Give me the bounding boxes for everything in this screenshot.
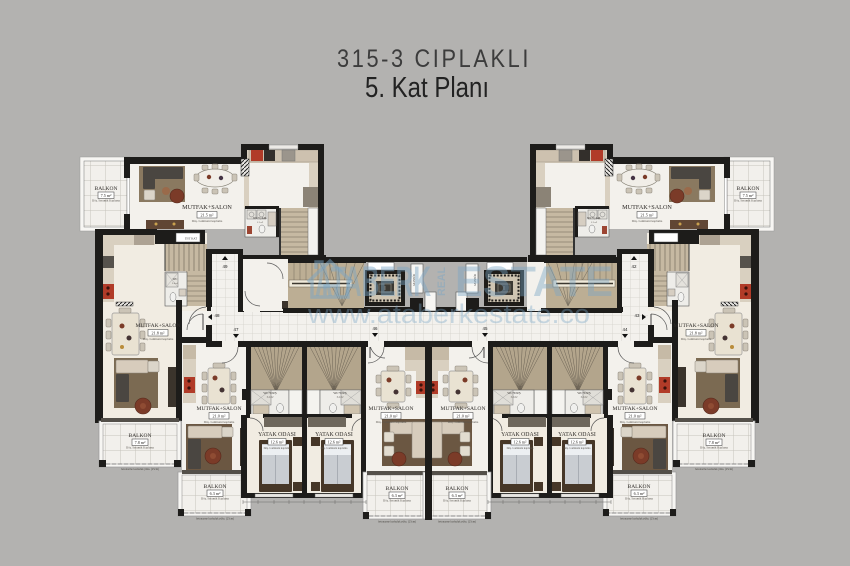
svg-text:7.5 m²: 7.5 m² — [743, 193, 755, 198]
svg-text:12.6 m²: 12.6 m² — [271, 440, 285, 445]
svg-text:YATAK ODASI: YATAK ODASI — [315, 432, 353, 438]
svg-text:BALKON: BALKON — [386, 486, 409, 492]
svg-text:MUTFAK+SALON: MUTFAK+SALON — [368, 406, 413, 412]
svg-text:www.ataberkestate.co: www.ataberkestate.co — [307, 299, 590, 329]
svg-text:BALKON: BALKON — [129, 433, 152, 439]
svg-text:Döş. Laminant kaplama: Döş. Laminant kaplama — [204, 420, 235, 424]
svg-text:21.0 m²: 21.0 m² — [213, 414, 227, 419]
svg-text:Döş. Seramik Kaplama: Döş. Seramik Kaplama — [734, 199, 763, 203]
svg-text:MUTFAK+SALON: MUTFAK+SALON — [440, 406, 485, 412]
svg-text:6.3 m²: 6.3 m² — [452, 493, 464, 498]
svg-text:MUTFAK+SALON: MUTFAK+SALON — [622, 204, 672, 211]
svg-text:BALKON: BALKON — [737, 186, 760, 192]
svg-text:6.3 m²: 6.3 m² — [210, 491, 222, 496]
svg-text:Döş. Seramik Kaplama: Döş. Seramik Kaplama — [700, 446, 729, 450]
svg-text:WC: WC — [173, 277, 178, 281]
svg-text:12.6 m²: 12.6 m² — [571, 440, 585, 445]
svg-text:6.3 m²: 6.3 m² — [634, 491, 646, 496]
svg-text:Döş. Laminant kaplama: Döş. Laminant kaplama — [681, 337, 712, 341]
svg-text:Döş. Laminant kaplama: Döş. Laminant kaplama — [448, 420, 479, 424]
svg-text:ÜST KAT: ÜST KAT — [185, 236, 197, 241]
svg-text:Döş. Laminant kaplama: Döş. Laminant kaplama — [507, 447, 535, 450]
svg-text:5.2 m²: 5.2 m² — [257, 221, 263, 224]
svg-text:5.2 m²: 5.2 m² — [591, 221, 597, 224]
svg-text:betonarme korkuluk yüks. (25cm: betonarme korkuluk yüks. (25cm) — [121, 468, 159, 471]
svg-text:YATAK ODASI: YATAK ODASI — [258, 432, 296, 438]
svg-text:Döş. Laminant kaplama: Döş. Laminant kaplama — [264, 447, 292, 450]
svg-text:Döş. Laminant kaplama: Döş. Laminant kaplama — [376, 420, 407, 424]
svg-text:WC+ÇAM.: WC+ÇAM. — [253, 216, 267, 220]
svg-text:49: 49 — [222, 264, 228, 269]
svg-text:21.0 m²: 21.0 m² — [385, 414, 399, 419]
svg-text:Döş. Laminant kaplama: Döş. Laminant kaplama — [620, 420, 651, 424]
svg-text:Döş. Seramik Kaplama: Döş. Seramik Kaplama — [126, 446, 155, 450]
svg-text:WC+DUŞ: WC+DUŞ — [577, 391, 591, 395]
svg-text:betonarme korkuluk yüks. (25cm: betonarme korkuluk yüks. (25cm) — [695, 468, 733, 471]
svg-text:BALKON: BALKON — [628, 484, 651, 490]
svg-text:Döş. Laminant kaplama: Döş. Laminant kaplama — [564, 447, 592, 450]
svg-text:Döş. Laminant kaplama: Döş. Laminant kaplama — [632, 219, 663, 223]
svg-text:REAL: REAL — [436, 267, 448, 296]
svg-text:43: 43 — [634, 313, 640, 318]
svg-text:315-3 CIPLAKLI: 315-3 CIPLAKLI — [337, 45, 531, 73]
svg-text:MUTFAK+SALON: MUTFAK+SALON — [612, 406, 657, 412]
svg-text:MUTFAK+SALON: MUTFAK+SALON — [182, 204, 232, 211]
svg-text:betonarme korkuluk yüks. (25cm: betonarme korkuluk yüks. (25cm) — [438, 521, 476, 524]
svg-text:WC+DUŞ: WC+DUŞ — [507, 391, 521, 395]
svg-text:Döş. Seramik Kaplama: Döş. Seramik Kaplama — [201, 497, 230, 501]
svg-text:48: 48 — [214, 313, 220, 318]
svg-text:21.5 m²: 21.5 m² — [201, 213, 215, 218]
svg-text:3.2 m²: 3.2 m² — [511, 396, 518, 399]
svg-text:MUTFAK+SALON: MUTFAK+SALON — [135, 323, 180, 329]
svg-text:44: 44 — [622, 327, 628, 332]
svg-text:7.8 m²: 7.8 m² — [135, 440, 147, 445]
svg-text:3.2 m²: 3.2 m² — [337, 396, 344, 399]
svg-text:YATAK ODASI: YATAK ODASI — [558, 432, 596, 438]
svg-text:MUTFAK+SALON: MUTFAK+SALON — [673, 323, 718, 329]
svg-text:21.8 m²: 21.8 m² — [152, 331, 166, 336]
svg-text:21.0 m²: 21.0 m² — [629, 414, 643, 419]
svg-text:WC+ÇAM.: WC+ÇAM. — [587, 216, 601, 220]
svg-text:21.8 m²: 21.8 m² — [690, 331, 704, 336]
svg-text:7.5 m²: 7.5 m² — [101, 193, 113, 198]
svg-text:BALKON: BALKON — [95, 186, 118, 192]
svg-text:BALKON: BALKON — [703, 433, 726, 439]
svg-text:5. Kat Planı: 5. Kat Planı — [365, 72, 489, 104]
svg-text:Döş. Seramik Kaplama: Döş. Seramik Kaplama — [443, 499, 472, 503]
svg-text:12.6 m²: 12.6 m² — [514, 440, 528, 445]
svg-text:3.4 m²: 3.4 m² — [172, 282, 178, 285]
svg-text:Döş. Seramik Kaplama: Döş. Seramik Kaplama — [92, 199, 121, 203]
svg-text:YATAK ODASI: YATAK ODASI — [501, 432, 539, 438]
svg-text:betonarme korkuluk yüks. (25cm: betonarme korkuluk yüks. (25cm) — [378, 521, 416, 524]
svg-text:Döş. Seramik Kaplama: Döş. Seramik Kaplama — [625, 497, 654, 501]
svg-text:BALKON: BALKON — [204, 484, 227, 490]
svg-text:Döş. Laminant kaplama: Döş. Laminant kaplama — [321, 447, 349, 450]
svg-text:BALKON: BALKON — [446, 486, 469, 492]
svg-text:betonarme korkuluk yüks. (25cm: betonarme korkuluk yüks. (25cm) — [620, 518, 658, 521]
svg-text:12.6 m²: 12.6 m² — [328, 440, 342, 445]
svg-text:MUTFAK+SALON: MUTFAK+SALON — [196, 406, 241, 412]
svg-text:3.2 m²: 3.2 m² — [581, 396, 588, 399]
svg-text:47: 47 — [233, 327, 239, 332]
svg-text:Döş. Laminant kaplama: Döş. Laminant kaplama — [143, 337, 174, 341]
svg-text:42: 42 — [631, 264, 637, 269]
svg-text:WC+DUŞ: WC+DUŞ — [333, 391, 347, 395]
svg-text:Döş. Seramik Kaplama: Döş. Seramik Kaplama — [383, 499, 412, 503]
svg-text:21.5 m²: 21.5 m² — [641, 213, 655, 218]
svg-text:Döş. Laminant kaplama: Döş. Laminant kaplama — [192, 219, 223, 223]
svg-text:3.2 m²: 3.2 m² — [267, 396, 274, 399]
svg-text:7.8 m²: 7.8 m² — [709, 440, 721, 445]
svg-text:6.3 m²: 6.3 m² — [392, 493, 404, 498]
svg-text:betonarme korkuluk yüks. (25cm: betonarme korkuluk yüks. (25cm) — [196, 518, 234, 521]
svg-text:WC+DUŞ: WC+DUŞ — [263, 391, 277, 395]
svg-text:21.0 m²: 21.0 m² — [457, 414, 471, 419]
